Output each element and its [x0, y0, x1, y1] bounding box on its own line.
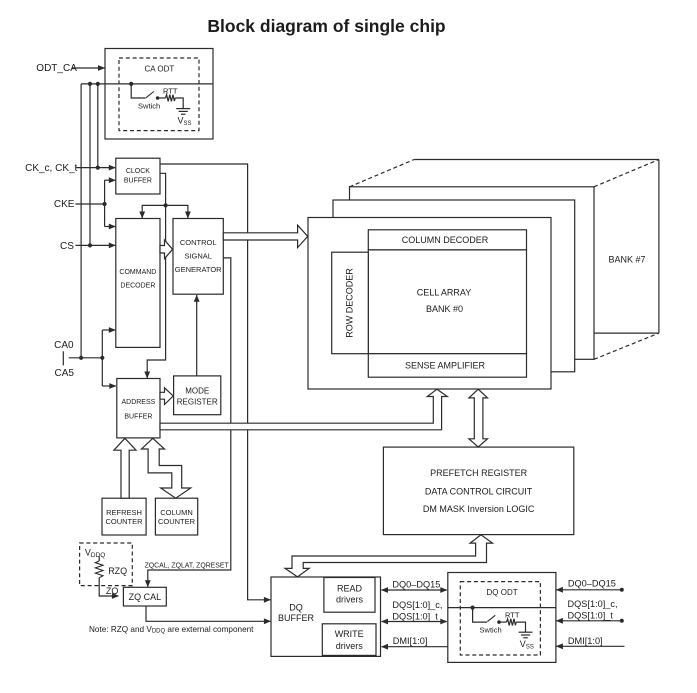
svg-text:RTT: RTT — [163, 86, 178, 95]
svg-text:SENSE AMPLIFIER: SENSE AMPLIFIER — [405, 361, 486, 371]
svg-text:DMI[1:0]: DMI[1:0] — [568, 636, 603, 646]
svg-text:DQS[1:0]_c,: DQS[1:0]_c, — [568, 599, 618, 609]
svg-text:Block diagram of single chip: Block diagram of single chip — [207, 16, 445, 36]
svg-text:DATA CONTROL CIRCUIT: DATA CONTROL CIRCUIT — [425, 486, 533, 496]
svg-text:COUNTER: COUNTER — [105, 517, 143, 526]
svg-text:RZQ: RZQ — [108, 566, 127, 576]
svg-text:DQS[1:0]_t: DQS[1:0]_t — [392, 611, 438, 621]
svg-text:DMI[1:0]: DMI[1:0] — [393, 636, 428, 646]
svg-text:ZQ: ZQ — [106, 586, 119, 596]
svg-text:BANK #0: BANK #0 — [426, 304, 463, 314]
svg-text:CS: CS — [60, 241, 74, 252]
svg-text:CA5: CA5 — [55, 368, 75, 379]
svg-text:Swtich: Swtich — [138, 101, 160, 110]
svg-text:CELL ARRAY: CELL ARRAY — [417, 288, 472, 298]
svg-text:GENERATOR: GENERATOR — [175, 265, 222, 274]
svg-text:DQS[1:0]_c,: DQS[1:0]_c, — [392, 600, 442, 610]
svg-text:ZQCAL, ZQLAT, ZQRESET: ZQCAL, ZQLAT, ZQRESET — [145, 563, 230, 570]
svg-text:RTT: RTT — [505, 610, 520, 619]
svg-text:BUFFER: BUFFER — [124, 177, 152, 184]
svg-text:BUFFER: BUFFER — [124, 414, 152, 421]
svg-text:ROW DECODER: ROW DECODER — [345, 268, 355, 338]
svg-text:CLOCK: CLOCK — [126, 168, 150, 175]
svg-text:COLUMN DECODER: COLUMN DECODER — [402, 235, 489, 245]
svg-text:COMMAND: COMMAND — [119, 269, 156, 276]
svg-text:CA0: CA0 — [54, 340, 74, 351]
svg-text:CONTROL: CONTROL — [180, 238, 217, 247]
svg-text:CKE: CKE — [54, 199, 75, 210]
svg-text:READ: READ — [337, 583, 363, 593]
svg-text:DQ0–DQ15: DQ0–DQ15 — [392, 579, 440, 589]
svg-text:WRITE: WRITE — [335, 629, 364, 639]
svg-text:DECODER: DECODER — [120, 282, 155, 289]
svg-text:Swtich: Swtich — [480, 625, 502, 634]
svg-text:DQS[1:0]_t: DQS[1:0]_t — [568, 611, 614, 621]
svg-text:drivers: drivers — [336, 641, 364, 651]
svg-text:PREFETCH REGISTER: PREFETCH REGISTER — [430, 468, 528, 478]
svg-text:REFRESH: REFRESH — [106, 508, 142, 517]
svg-text:COUNTER: COUNTER — [158, 517, 196, 526]
svg-text:DM MASK Inversion LOGIC: DM MASK Inversion LOGIC — [423, 504, 535, 514]
svg-text:COLUMN: COLUMN — [160, 508, 193, 517]
svg-text:SIGNAL: SIGNAL — [184, 252, 212, 261]
svg-text:CK_c, CK_t: CK_c, CK_t — [25, 163, 77, 174]
svg-text:ZQ CAL: ZQ CAL — [129, 592, 162, 602]
svg-text:drivers: drivers — [336, 595, 364, 605]
svg-text:BANK #7: BANK #7 — [608, 255, 645, 265]
svg-text:DQ: DQ — [289, 602, 303, 612]
svg-text:BUFFER: BUFFER — [278, 613, 315, 623]
svg-text:CA ODT: CA ODT — [145, 64, 175, 73]
svg-text:ADDRESS: ADDRESS — [121, 399, 155, 406]
svg-text:Note: RZQ and VDDQ are externa: Note: RZQ and VDDQ are external componen… — [89, 625, 254, 635]
svg-text:DQ0–DQ15: DQ0–DQ15 — [568, 579, 616, 589]
svg-text:REGISTER: REGISTER — [177, 397, 218, 406]
svg-text:ODT_CA: ODT_CA — [36, 63, 77, 74]
svg-text:MODE: MODE — [185, 386, 209, 395]
svg-text:DQ ODT: DQ ODT — [487, 588, 518, 597]
